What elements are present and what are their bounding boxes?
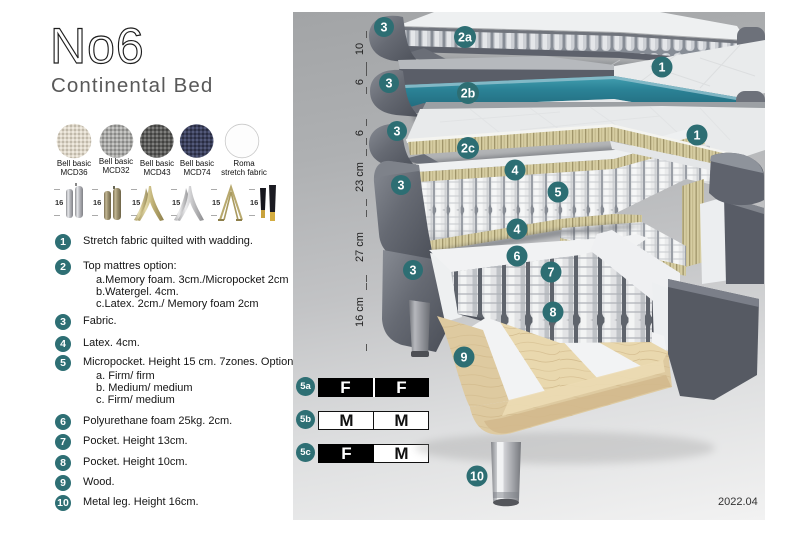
svg-text:4: 4 bbox=[512, 164, 519, 178]
svg-text:2b: 2b bbox=[461, 87, 476, 101]
svg-text:2a: 2a bbox=[458, 31, 473, 45]
svg-text:3: 3 bbox=[410, 264, 417, 278]
svg-text:9: 9 bbox=[461, 351, 468, 365]
svg-text:3: 3 bbox=[398, 179, 405, 193]
svg-text:2c: 2c bbox=[461, 142, 475, 156]
svg-text:3: 3 bbox=[381, 21, 388, 35]
svg-text:3: 3 bbox=[394, 125, 401, 139]
svg-text:6: 6 bbox=[514, 250, 521, 264]
svg-text:5: 5 bbox=[555, 186, 562, 200]
svg-text:1: 1 bbox=[659, 61, 666, 75]
svg-text:1: 1 bbox=[694, 129, 701, 143]
svg-text:7: 7 bbox=[548, 266, 555, 280]
svg-text:10: 10 bbox=[470, 470, 484, 484]
svg-text:8: 8 bbox=[550, 306, 557, 320]
svg-text:3: 3 bbox=[386, 77, 393, 91]
svg-text:4: 4 bbox=[514, 223, 521, 237]
